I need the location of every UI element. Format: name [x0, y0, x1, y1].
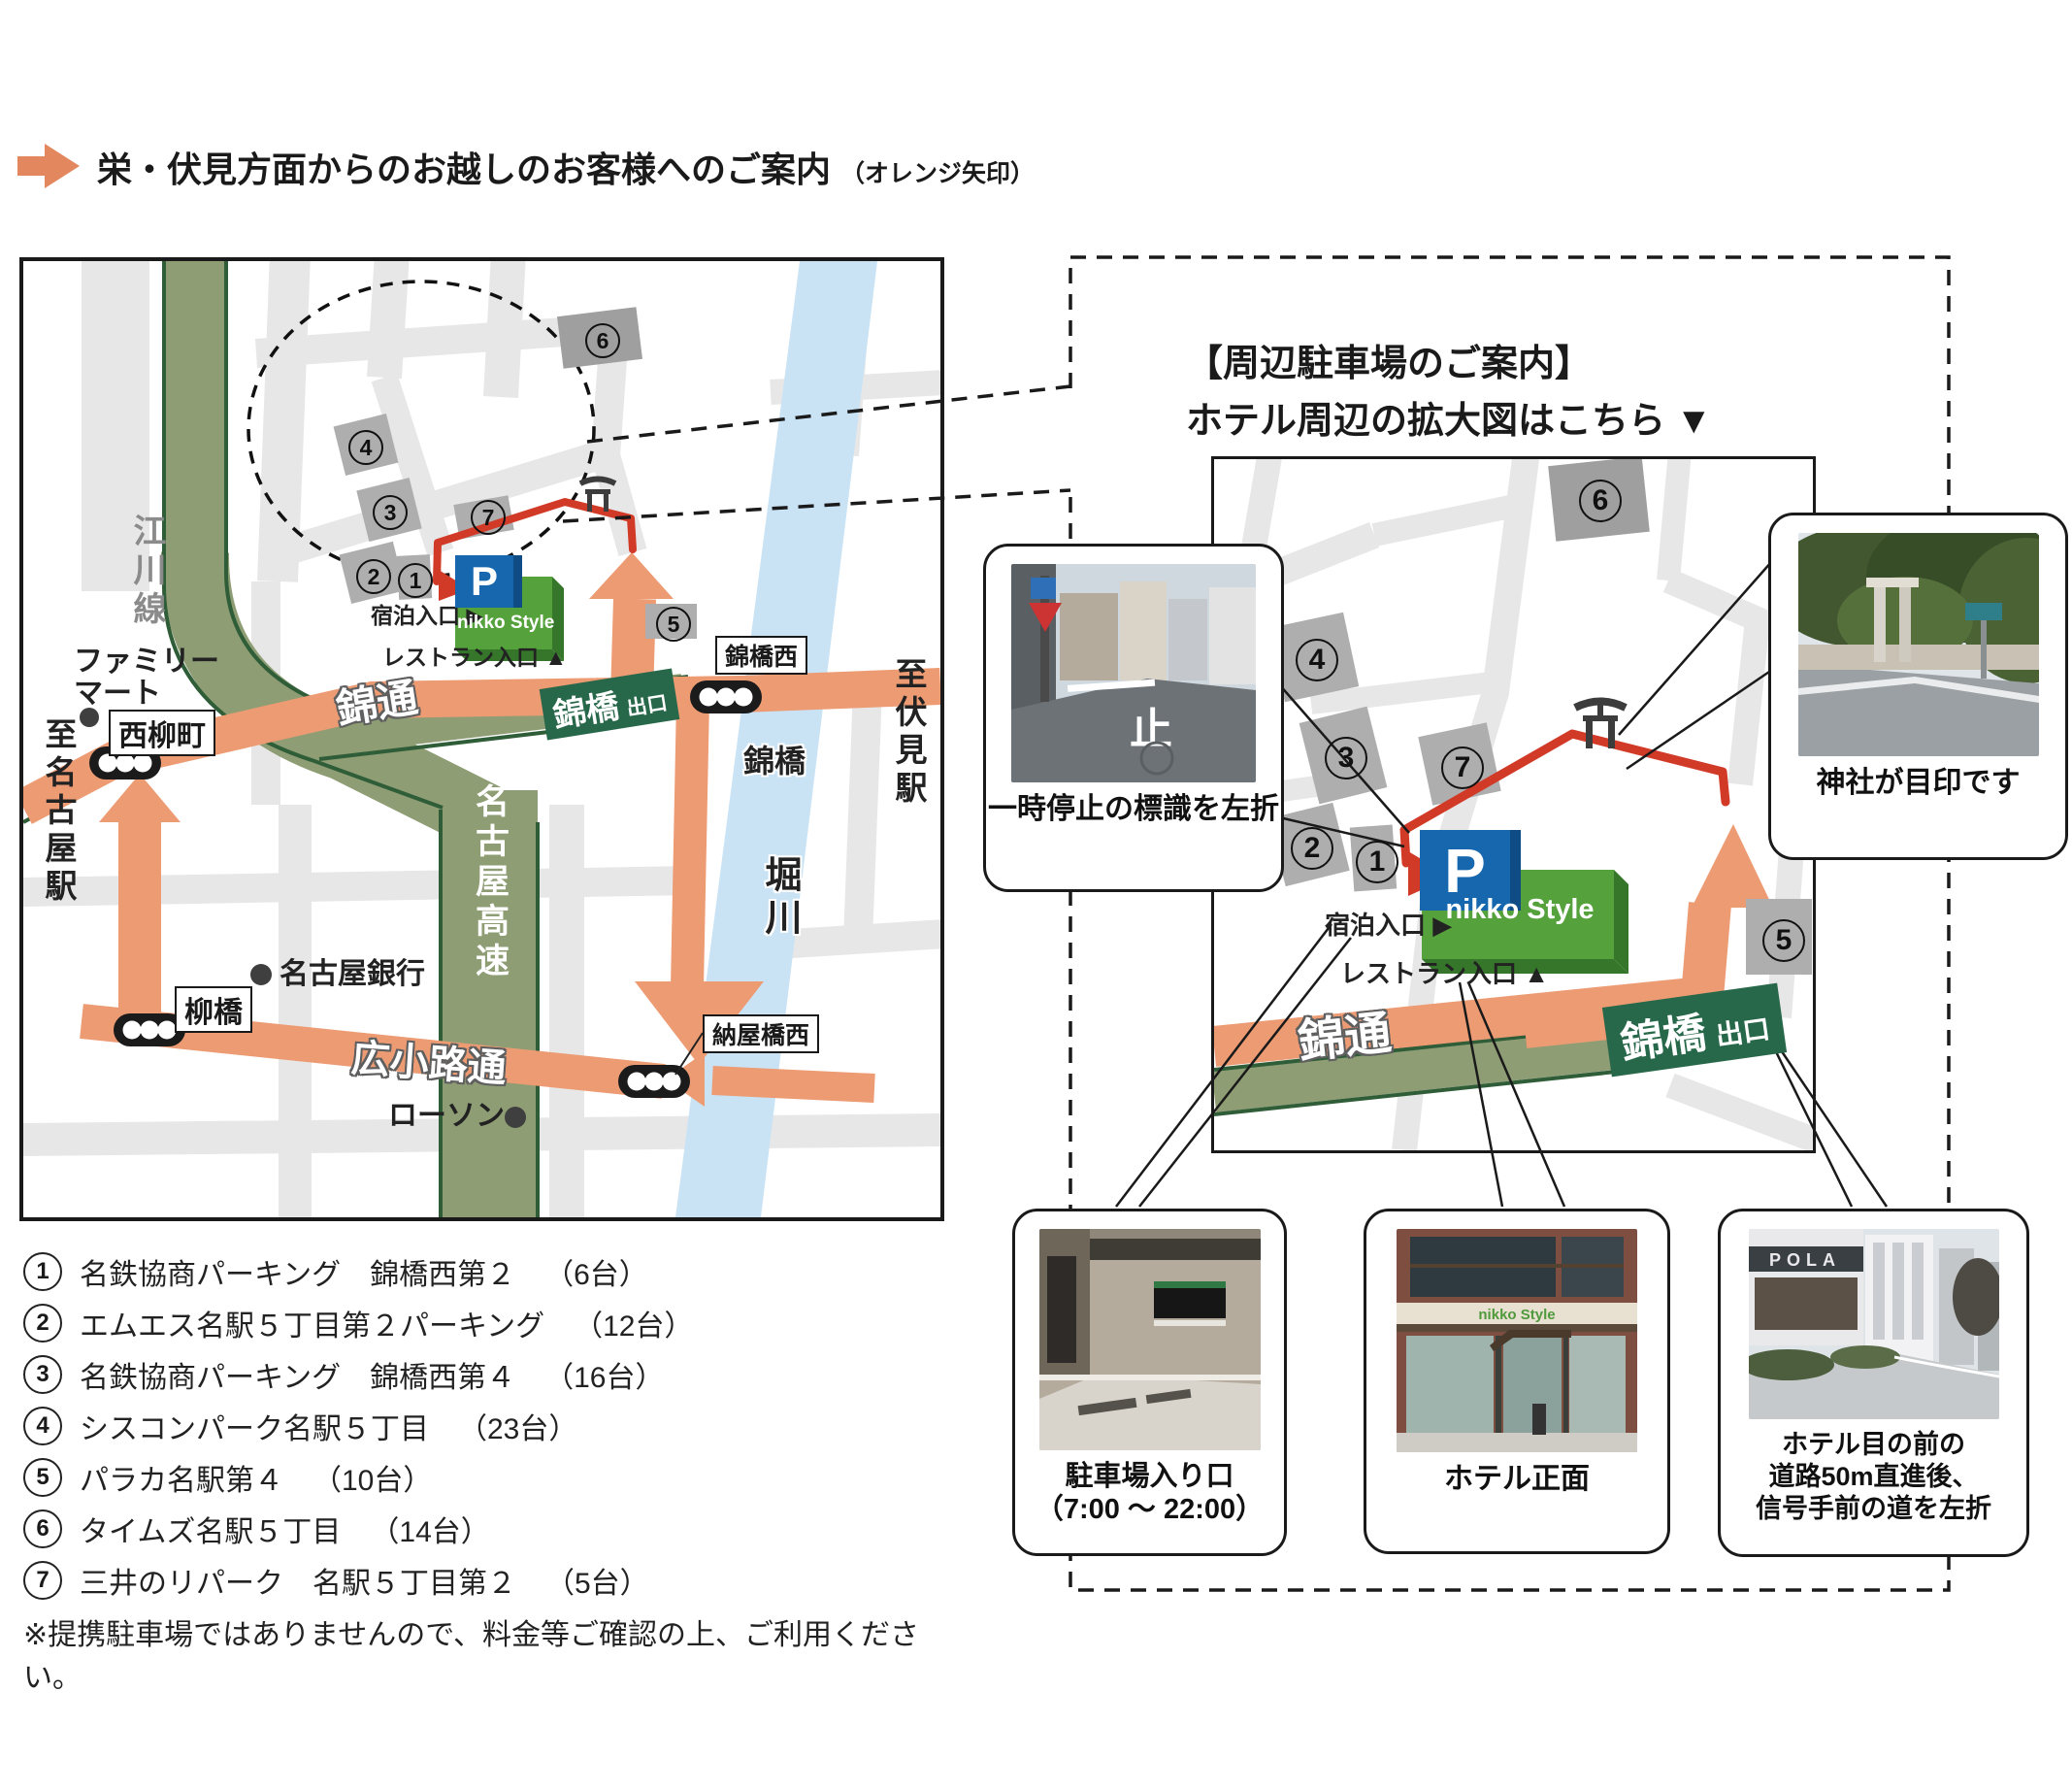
nishiki-dori-label-right: 錦通: [1295, 994, 1395, 1072]
callout-hotel-front: nikko Style ホテル正面: [1364, 1209, 1670, 1554]
restaurant-entrance-label: レストラン入口 ▲: [382, 646, 567, 670]
lawson-dot: [505, 1107, 526, 1128]
lawson-label: ローソン: [388, 1100, 505, 1132]
egawa-line-label: 江川線: [123, 514, 171, 630]
nishikibashi-street: [687, 700, 693, 987]
page-title: 栄・伏見方面からのお越しのお客様へのご案内 （オレンジ矢印）: [97, 142, 1035, 192]
to-nagoya-label: 至名古屋駅: [35, 717, 82, 907]
bridge-label: 錦橋: [743, 737, 806, 781]
signal-nishikibashi-nishi: [690, 680, 762, 713]
map-num-5r: 5: [1762, 919, 1805, 962]
hotel-brand-label: nikko Style: [457, 613, 552, 634]
parking-item: 2 エムエス名駅５丁目第２パーキング （12台）: [23, 1302, 926, 1344]
parking-item: 4 シスコンパーク名駅５丁目 （23台）: [23, 1405, 926, 1447]
stop-sign-photo: 止: [1011, 564, 1256, 782]
map-num-7r: 7: [1441, 746, 1484, 789]
signal-label-nishiyanagicho: 西柳町: [109, 710, 215, 756]
hirokoji-label: 広小路通: [349, 1026, 509, 1093]
parking-list: 1 名鉄協商パーキング 錦橋西第２ （6台） 2 エムエス名駅５丁目第２パーキン…: [23, 1250, 926, 1696]
hotel-front-photo: nikko Style: [1397, 1229, 1637, 1452]
parking-note: ※提携駐車場ではありませんので、料金等ご確認の上、ご利用ください。: [23, 1610, 926, 1696]
callout-stop-sign: 止 一時停止の標識を左折: [983, 544, 1284, 892]
arrow-up-right-map: [1692, 824, 1773, 908]
signal-label-yanagibashi: 柳橋: [175, 986, 252, 1033]
to-fushimi-label: 至伏見駅: [885, 657, 932, 809]
expressway-label: 名古屋高速: [465, 783, 514, 982]
map-num-6r: 6: [1579, 480, 1622, 522]
bank-label: 名古屋銀行: [280, 958, 425, 990]
callout-stop-caption: 一時停止の標識を左折: [986, 792, 1281, 826]
map-num-7: 7: [471, 500, 506, 535]
parking-entrance-photo: [1039, 1229, 1261, 1450]
parking-p-badge: P: [455, 555, 513, 608]
hotel-brand-label-right: nikko Style: [1430, 894, 1610, 926]
page-title-suffix: （オレンジ矢印）: [840, 160, 1035, 187]
map-num-1r: 1: [1356, 841, 1398, 883]
callout-shrine: 神社が目印です: [1768, 513, 2068, 860]
map-num-3: 3: [373, 495, 408, 530]
nishiki-dori-label: 錦通: [332, 665, 422, 736]
callout-hotel-front-caption: ホテル正面: [1366, 1462, 1667, 1496]
map-num-2: 2: [356, 559, 391, 594]
svg-text:nikko Style: nikko Style: [1478, 1307, 1555, 1323]
map-num-4r: 4: [1296, 639, 1338, 681]
callout-parking-caption: 駐車場入り口 （7:00 ～ 22:00）: [1015, 1460, 1284, 1526]
map-num-1: 1: [398, 563, 433, 598]
horikawa-label: 堀川: [753, 855, 806, 941]
map-num-2r: 2: [1291, 827, 1333, 870]
callout-pola: POLA ホテル目の前の 道路50m直進後、 信号手前の道を左折: [1718, 1209, 2029, 1557]
arrow-up-hotel: [589, 552, 674, 599]
callout-parking-entrance: 駐車場入り口 （7:00 ～ 22:00）: [1012, 1209, 1287, 1556]
map-num-6: 6: [585, 323, 620, 358]
familymart-dot: [80, 708, 99, 727]
header-arrow-icon: [17, 142, 82, 195]
map-num-3r: 3: [1325, 737, 1367, 779]
signal-label-nishikibashi-nishi: 錦橋西: [715, 636, 807, 675]
parking-item: 6 タイムズ名駅５丁目 （14台）: [23, 1508, 926, 1550]
pola-street-photo: POLA: [1749, 1229, 1999, 1419]
page-title-text: 栄・伏見方面からのお越しのお客様へのご案内: [97, 149, 831, 189]
restaurant-entrance-label-right: レストラン入口 ▲: [1340, 960, 1549, 988]
parking-item: 7 三井のリパーク 名駅５丁目第２ （5台）: [23, 1559, 926, 1602]
area-map: 江川線 名古屋高速 至名古屋駅 至伏見駅 堀川 錦橋 錦通 広小路通 ファミリー…: [19, 257, 944, 1221]
shrine-photo: [1798, 533, 2039, 756]
callout-shrine-caption: 神社が目印です: [1771, 766, 2065, 800]
svg-text:POLA: POLA: [1768, 1250, 1840, 1270]
familymart-label: ファミリー マート: [74, 646, 219, 710]
enlarged-map: 錦通 錦橋 出口 宿泊入口 ▶ レストラン入口 ▲ P nikko Style …: [1211, 456, 1816, 1153]
parking-item: 3 名鉄協商パーキング 錦橋西第４ （16台）: [23, 1353, 926, 1396]
parking-item: 1 名鉄協商パーキング 錦橋西第２ （6台）: [23, 1250, 926, 1293]
callout-pola-caption: ホテル目の前の 道路50m直進後、 信号手前の道を左折: [1721, 1429, 2026, 1525]
map-num-4: 4: [348, 430, 383, 465]
right-panel-title: 【周辺駐車場のご案内】 ホテル周辺の拡大図はこちら ▼: [1186, 336, 1712, 450]
signal-label-nayabashi-nishi: 納屋橋西: [703, 1014, 819, 1053]
parking-item: 5 パラカ名駅第４ （10台）: [23, 1456, 926, 1499]
bank-dot: [250, 964, 272, 985]
map-num-5: 5: [656, 607, 691, 642]
